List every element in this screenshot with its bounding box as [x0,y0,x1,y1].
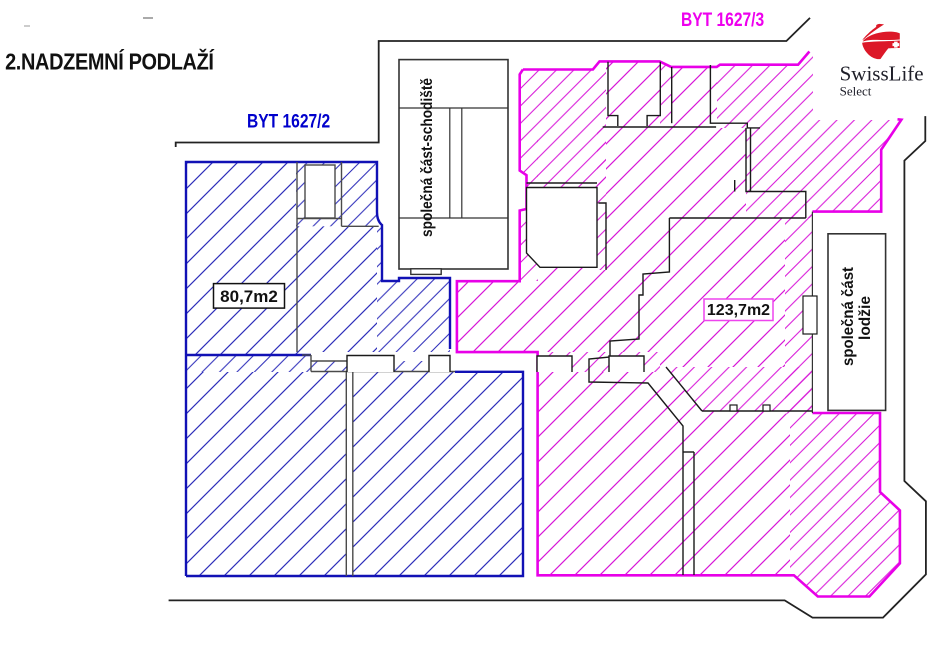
svg-text:123,7m2: 123,7m2 [707,302,770,319]
svg-text:společná část: společná část [840,266,857,366]
svg-text:2.NADZEMNÍ PODLAŽÍ: 2.NADZEMNÍ PODLAŽÍ [5,48,215,75]
svg-text:SwissLife: SwissLife [840,62,924,86]
svg-text:společná část-schodiště: společná část-schodiště [419,78,436,237]
svg-text:BYT 1627/2: BYT 1627/2 [247,110,330,132]
svg-text:Select: Select [840,84,872,99]
svg-text:80,7m2: 80,7m2 [220,287,278,306]
svg-text:lodžie: lodžie [857,296,874,340]
svg-text:BYT 1627/3: BYT 1627/3 [681,8,764,30]
